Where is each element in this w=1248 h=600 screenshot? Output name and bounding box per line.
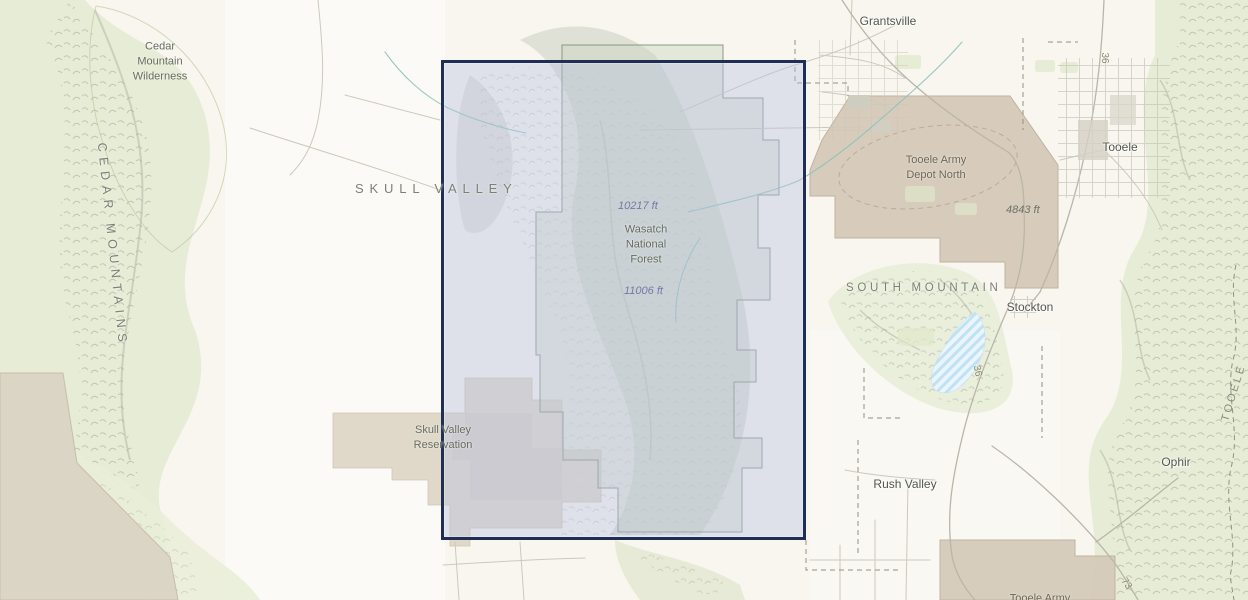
skull-valley-floor [225, 0, 445, 600]
map-canvas[interactable]: Cedar Mountain Wilderness CEDAR MOUNTAIN… [0, 0, 1248, 600]
selection-rectangle[interactable] [441, 60, 806, 540]
